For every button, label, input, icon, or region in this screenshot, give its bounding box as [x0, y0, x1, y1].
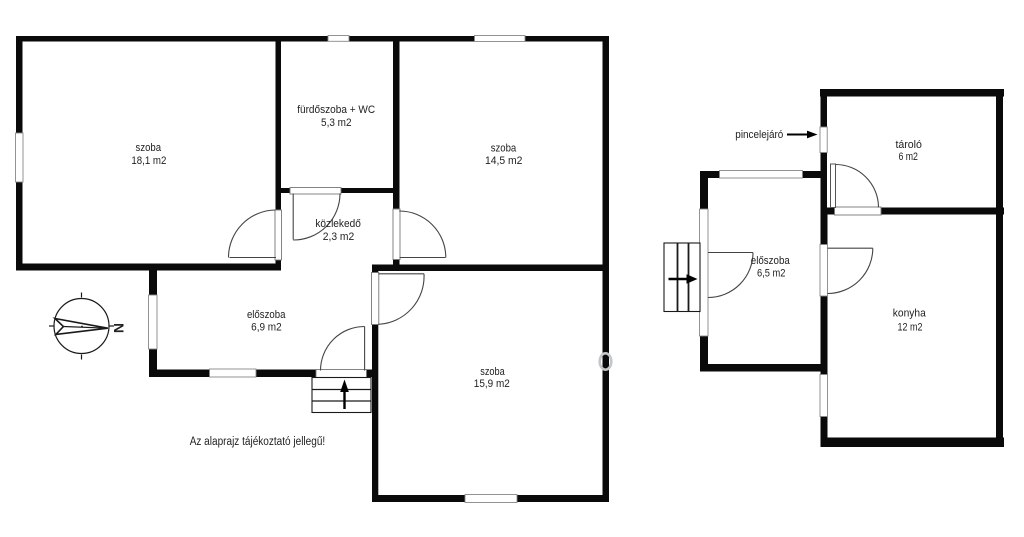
svg-text:5,3 m2: 5,3 m2: [321, 117, 352, 129]
svg-text:szoba: szoba: [136, 142, 162, 154]
svg-text:fürdőszoba + WC: fürdőszoba + WC: [297, 104, 375, 116]
svg-text:N: N: [111, 323, 127, 333]
svg-text:18,1 m2: 18,1 m2: [131, 155, 166, 167]
svg-text:Az alaprajz tájékoztató jelleg: Az alaprajz tájékoztató jellegű!: [190, 436, 326, 448]
svg-text:szoba: szoba: [480, 366, 505, 378]
svg-text:14,5 m2: 14,5 m2: [485, 155, 523, 167]
svg-text:6,9 m2: 6,9 m2: [251, 322, 282, 334]
svg-text:szoba: szoba: [491, 143, 517, 155]
svg-text:pincelejáró: pincelejáró: [735, 129, 783, 141]
svg-text:2,3 m2: 2,3 m2: [323, 231, 355, 243]
svg-text:6,5 m2: 6,5 m2: [757, 267, 786, 279]
svg-text:konyha: konyha: [893, 308, 927, 320]
svg-text:közlekedő: közlekedő: [315, 218, 361, 230]
svg-text:12 m2: 12 m2: [898, 322, 923, 334]
svg-text:15,9 m2: 15,9 m2: [474, 378, 510, 390]
svg-text:tároló: tároló: [895, 139, 922, 151]
svg-text:előszoba: előszoba: [751, 255, 791, 267]
svg-text:6 m2: 6 m2: [898, 151, 918, 163]
svg-text:előszoba: előszoba: [247, 309, 286, 321]
